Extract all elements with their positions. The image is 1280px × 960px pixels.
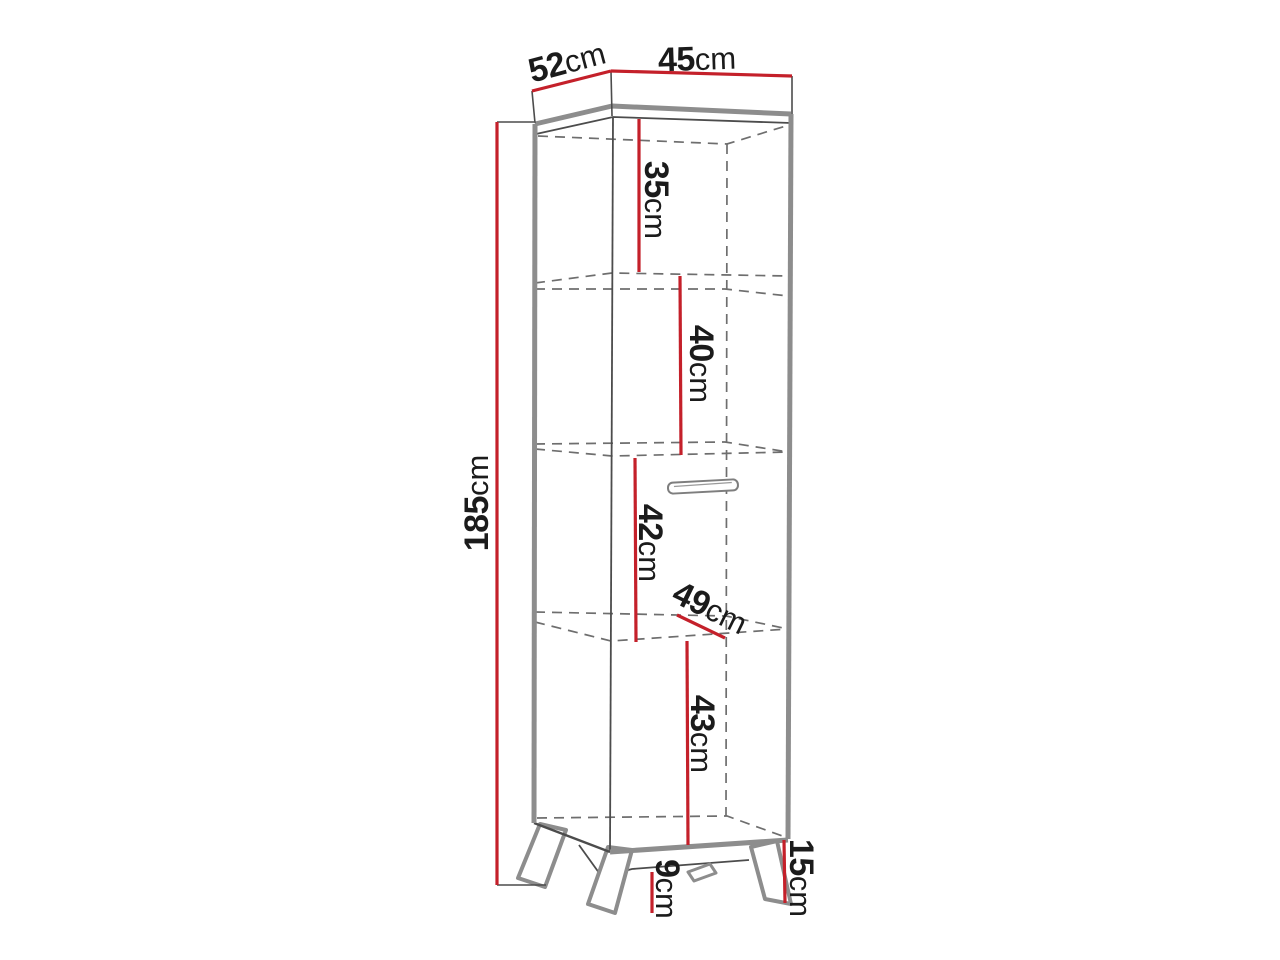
shelf-1-front-edge	[535, 273, 788, 283]
dim-label-underside-clearance: 9cm	[648, 859, 686, 919]
cabinet-top-body-edge	[536, 117, 791, 134]
cabinet-front-corner-edge	[610, 117, 613, 852]
interior-top-edges	[538, 125, 789, 144]
leg-back-right	[688, 864, 716, 881]
dim-label-compartment-4: 43cm	[683, 695, 721, 773]
shelf-1-back-edge	[535, 289, 788, 296]
dim-line-compartment-2	[680, 276, 681, 455]
dim-label-top-front-width: 45cm	[657, 39, 736, 80]
witness-top-left	[532, 91, 535, 123]
leg-front-left	[588, 847, 632, 913]
dim-label-leg-height: 15cm	[782, 839, 820, 917]
cabinet-left-edge	[534, 124, 535, 823]
shelf-2-back-edge	[535, 442, 788, 452]
shelf-2-front-edge	[535, 449, 788, 456]
dim-label-compartment-2: 40cm	[682, 325, 720, 403]
door-handle	[668, 479, 738, 494]
shelf-3-front-edge	[535, 622, 788, 641]
furniture-dimension-diagram: 52cm 45cm 185cm 35cm 40cm 42cm 49cm 43cm…	[0, 0, 1280, 960]
dim-label-compartment-1: 35cm	[637, 161, 675, 239]
cabinet-right-edge	[788, 114, 791, 839]
dim-label-total-height: 185cm	[458, 455, 496, 552]
dim-label-compartment-3: 42cm	[631, 504, 669, 582]
dimension-labels-group: 52cm 45cm 185cm 35cm 40cm 42cm 49cm 43cm…	[458, 34, 820, 919]
witness-top-apex	[611, 71, 612, 116]
interior-bottom-edges	[537, 816, 788, 838]
diagram-page: 52cm 45cm 185cm 35cm 40cm 42cm 49cm 43cm…	[0, 0, 1280, 960]
